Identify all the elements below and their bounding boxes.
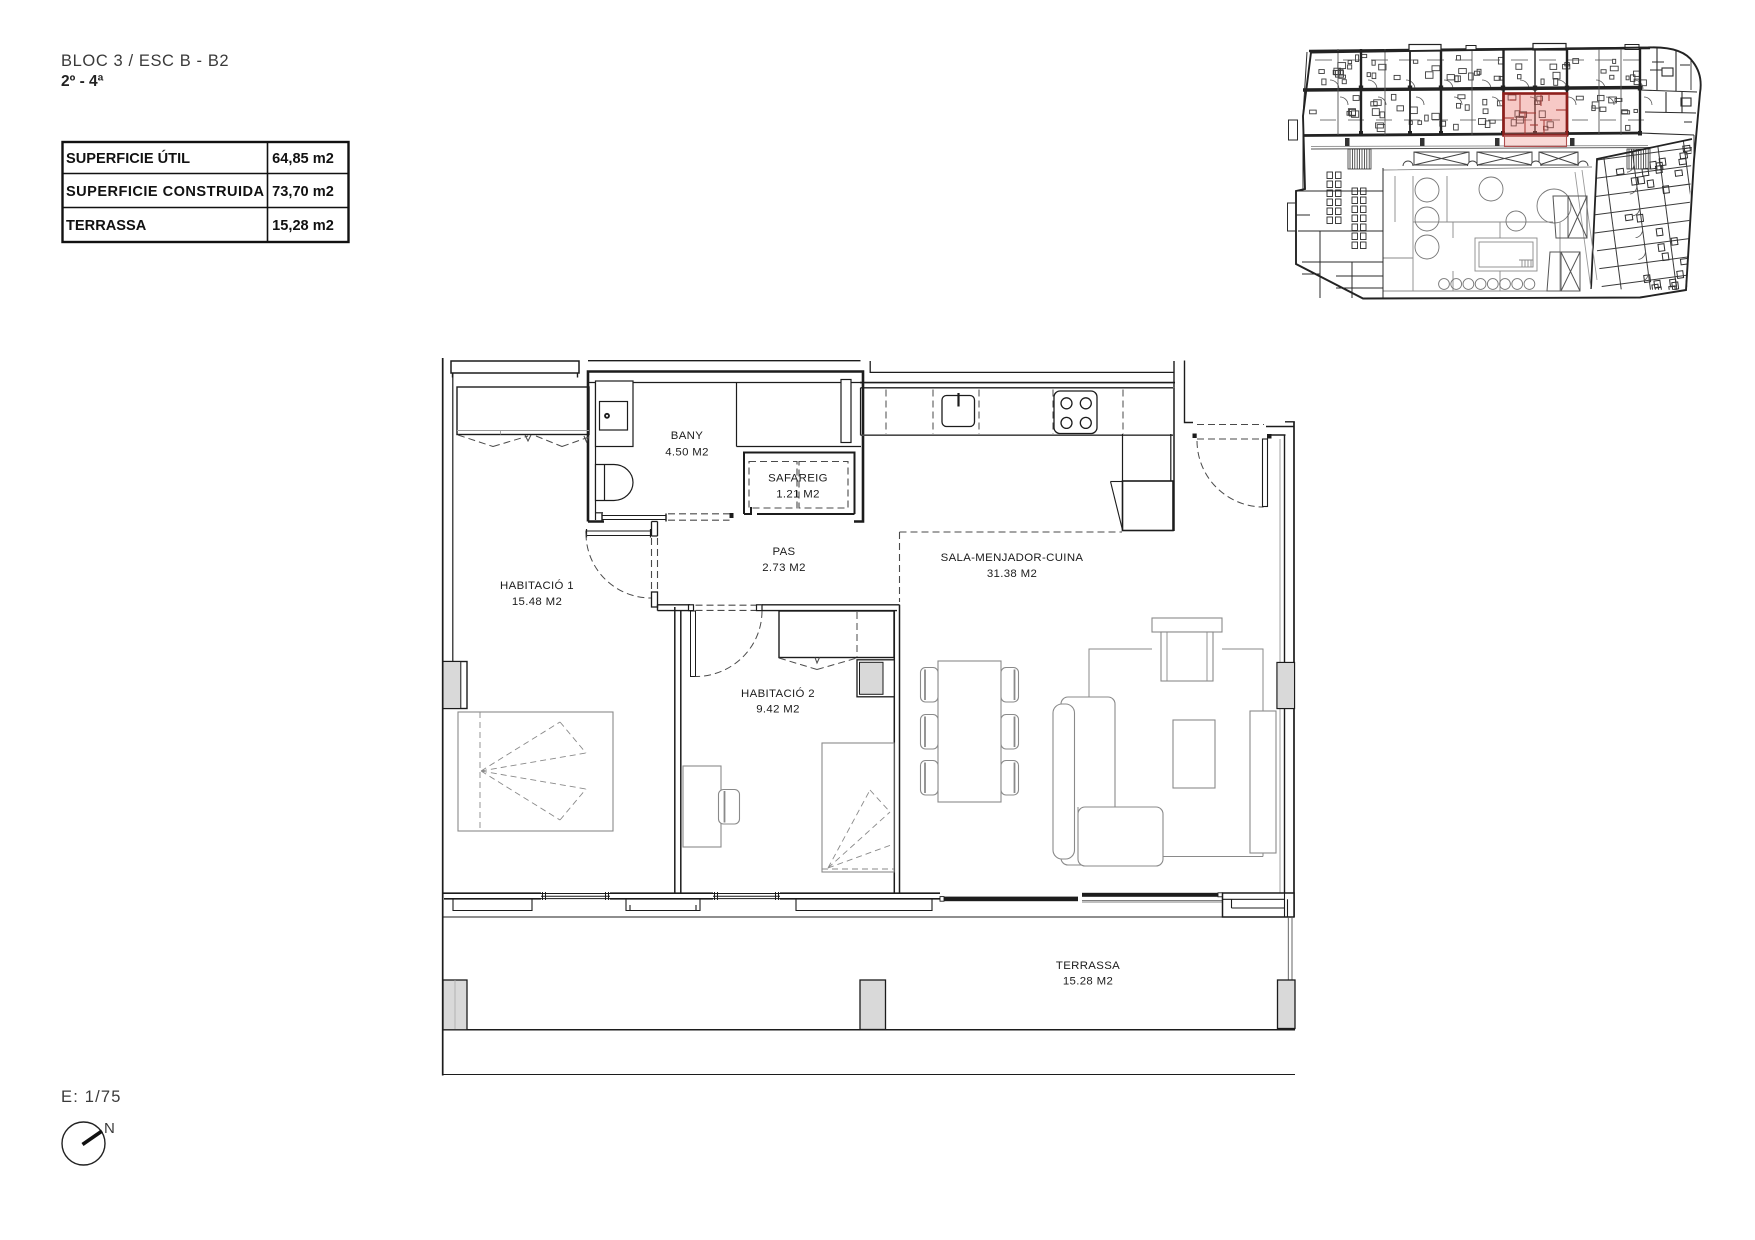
svg-text:BANY: BANY [671, 430, 703, 442]
svg-text:HABITACIÓ 1: HABITACIÓ 1 [500, 579, 574, 592]
svg-text:4.50 M2: 4.50 M2 [665, 447, 709, 459]
svg-text:SUPERFICIE CONSTRUIDA: SUPERFICIE CONSTRUIDA [66, 184, 264, 200]
svg-text:TERRASSA: TERRASSA [1056, 960, 1120, 972]
svg-text:9.42 M2: 9.42 M2 [756, 704, 800, 716]
svg-text:HABITACIÓ 2: HABITACIÓ 2 [741, 687, 815, 700]
svg-text:TERRASSA: TERRASSA [66, 218, 147, 234]
svg-text:73,70 m2: 73,70 m2 [272, 184, 334, 200]
svg-text:15.28 M2: 15.28 M2 [1063, 976, 1113, 988]
svg-text:64,85 m2: 64,85 m2 [272, 151, 334, 167]
svg-text:BLOC 3 / ESC B - B2: BLOC 3 / ESC B - B2 [61, 52, 229, 70]
svg-text:N: N [104, 1120, 115, 1137]
svg-text:PAS: PAS [773, 546, 796, 558]
svg-text:31.38 M2: 31.38 M2 [987, 568, 1037, 580]
svg-text:SUPERFICIE ÚTIL: SUPERFICIE ÚTIL [66, 149, 190, 167]
svg-text:2.73 M2: 2.73 M2 [762, 562, 806, 574]
svg-text:2º - 4ª: 2º - 4ª [61, 73, 104, 90]
svg-text:SAFAREIG: SAFAREIG [768, 473, 828, 485]
svg-text:1.21 M2: 1.21 M2 [776, 489, 820, 501]
svg-text:15.48 M2: 15.48 M2 [512, 596, 562, 608]
svg-text:15,28 m2: 15,28 m2 [272, 218, 334, 234]
svg-text:E: 1/75: E: 1/75 [61, 1088, 122, 1106]
svg-text:SALA-MENJADOR-CUINA: SALA-MENJADOR-CUINA [941, 552, 1084, 564]
